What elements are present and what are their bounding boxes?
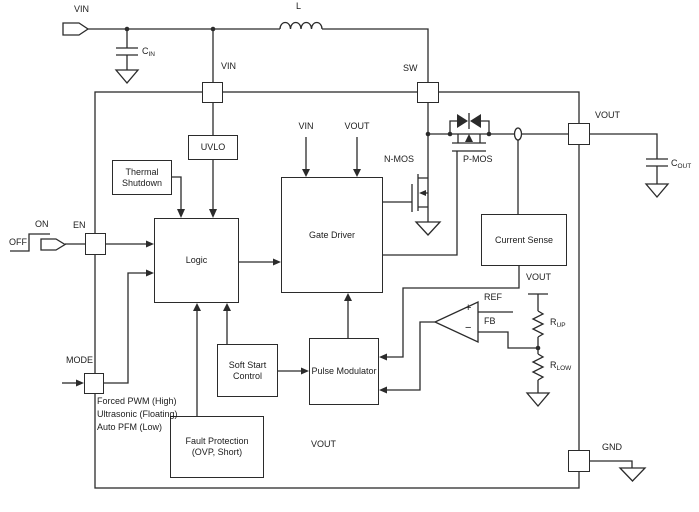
fault-logic-wire bbox=[193, 303, 201, 416]
comparator-plus-label: + bbox=[465, 303, 471, 314]
mode-pin-label: MODE bbox=[66, 355, 93, 365]
ground-icon bbox=[116, 70, 138, 83]
vout-pin bbox=[568, 123, 590, 145]
pulsemod-gatedriver-wire bbox=[344, 293, 352, 338]
sw-pin-label: SW bbox=[403, 63, 418, 73]
en-wire bbox=[65, 241, 154, 248]
fault-protection-label2: (OVP, Short) bbox=[192, 447, 242, 458]
en-connector-icon bbox=[41, 239, 65, 250]
vin-uvlo-logic-wire bbox=[209, 103, 217, 218]
pmos-transistor-icon bbox=[383, 134, 486, 255]
inductor-label: L bbox=[296, 1, 301, 11]
pmos-gate-wire bbox=[383, 151, 457, 255]
soft-start-block: Soft Start Control bbox=[217, 344, 278, 397]
cout-label: COUT bbox=[671, 158, 691, 172]
divider-vout-label: VOUT bbox=[526, 272, 551, 282]
ground-icon bbox=[620, 468, 645, 481]
soft-start-label2: Control bbox=[233, 371, 262, 382]
mode-option-forced-pwm: Forced PWM (High) bbox=[97, 395, 178, 408]
gnd-pin-label: GND bbox=[602, 442, 622, 452]
gatedriver-vin-arrow bbox=[302, 137, 310, 177]
mode-option-ultrasonic: Ultrasonic (Floating) bbox=[97, 408, 178, 421]
ground-icon bbox=[416, 222, 440, 235]
inductor-icon bbox=[280, 23, 322, 29]
sw-pin bbox=[417, 82, 439, 103]
fault-protection-block: Fault Protection (OVP, Short) bbox=[170, 416, 264, 478]
current-sense-block: Current Sense bbox=[481, 214, 567, 266]
off-label: OFF bbox=[9, 237, 27, 247]
thermal-shutdown-label: Thermal bbox=[125, 167, 158, 178]
current-sense-label: Current Sense bbox=[495, 235, 553, 246]
input-rail bbox=[88, 29, 428, 82]
uvlo-block: UVLO bbox=[188, 135, 238, 160]
pulse-modulator-label: Pulse Modulator bbox=[311, 366, 376, 377]
en-pin bbox=[85, 233, 106, 255]
resistor-rup-icon bbox=[533, 311, 543, 337]
mode-option-auto-pfm: Auto PFM (Low) bbox=[97, 421, 178, 434]
ground-icon bbox=[646, 184, 668, 197]
input-capacitor-icon bbox=[116, 29, 138, 83]
ground-icon bbox=[527, 393, 549, 406]
logic-block: Logic bbox=[154, 218, 239, 303]
nmos-label: N-MOS bbox=[384, 154, 414, 164]
ref-label: REF bbox=[484, 292, 502, 302]
thermal-logic-wire bbox=[172, 177, 185, 218]
vin-tag-label: VIN bbox=[74, 4, 89, 14]
body-diode-icon bbox=[450, 113, 489, 134]
rlow-label: RLOW bbox=[550, 360, 571, 374]
nmos-transistor-icon bbox=[383, 103, 440, 235]
gate-driver-block: Gate Driver bbox=[281, 177, 383, 293]
current-sense-element-icon bbox=[515, 128, 522, 214]
vout-pin-label: VOUT bbox=[595, 110, 620, 120]
rup-label: RUP bbox=[550, 317, 566, 331]
mode-options-list: Forced PWM (High) Ultrasonic (Floating) … bbox=[97, 395, 178, 434]
softstart-pulsemod-wire bbox=[278, 368, 309, 375]
fb-label: FB bbox=[484, 316, 496, 326]
vin-pin bbox=[202, 82, 223, 103]
currentsense-pulsemod-wire bbox=[379, 266, 519, 361]
output-capacitor-icon bbox=[590, 134, 668, 197]
thermal-shutdown-label2: Shutdown bbox=[122, 178, 162, 189]
gate-driver-label: Gate Driver bbox=[309, 230, 355, 241]
logic-label: Logic bbox=[186, 255, 208, 266]
fault-protection-label: Fault Protection bbox=[185, 436, 248, 447]
gate-driver-vout-label: VOUT bbox=[344, 121, 369, 131]
gnd-wire bbox=[590, 461, 645, 481]
softstart-logic-wire bbox=[223, 303, 231, 344]
resistor-rlow-icon bbox=[533, 354, 543, 380]
fault-vout-label: VOUT bbox=[311, 439, 336, 449]
thermal-shutdown-block: Thermal Shutdown bbox=[112, 160, 172, 195]
gate-driver-vin-label: VIN bbox=[298, 121, 313, 131]
vin-connector-icon bbox=[63, 23, 88, 35]
mode-wire bbox=[62, 270, 154, 387]
gatedriver-vout-arrow bbox=[353, 137, 361, 177]
uvlo-label: UVLO bbox=[201, 142, 226, 153]
en-pin-label: EN bbox=[73, 220, 86, 230]
comparator-minus-label: − bbox=[465, 323, 471, 334]
pulse-modulator-block: Pulse Modulator bbox=[309, 338, 379, 405]
mode-pin bbox=[84, 373, 104, 394]
soft-start-label: Soft Start bbox=[229, 360, 267, 371]
gnd-pin bbox=[568, 450, 590, 472]
on-label: ON bbox=[35, 219, 49, 229]
logic-gatedriver-wire bbox=[239, 259, 281, 266]
vin-pin-label: VIN bbox=[221, 61, 236, 71]
pmos-label: P-MOS bbox=[463, 154, 493, 164]
buck-converter-block-diagram: UVLO Thermal Shutdown Logic Gate Driver … bbox=[0, 0, 699, 512]
cin-label: CIN bbox=[142, 46, 155, 60]
